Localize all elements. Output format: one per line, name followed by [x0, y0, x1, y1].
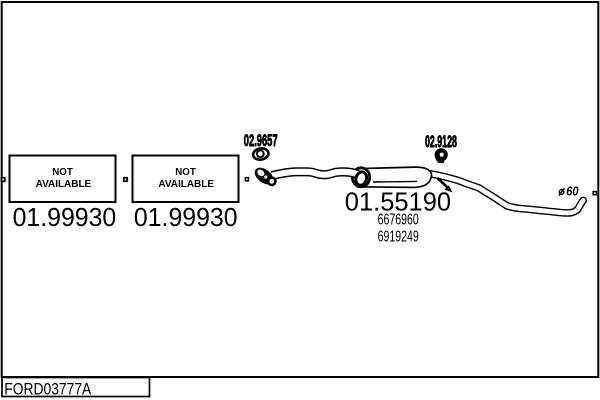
- svg-text:AVAILABLE: AVAILABLE: [158, 179, 214, 190]
- svg-text:AVAILABLE: AVAILABLE: [36, 179, 92, 190]
- svg-text:NOT: NOT: [52, 167, 73, 178]
- svg-text:6919249: 6919249: [378, 227, 419, 245]
- svg-text:FORD03777A: FORD03777A: [4, 381, 92, 399]
- svg-text:6676960: 6676960: [378, 210, 419, 228]
- svg-text:01.99930: 01.99930: [134, 204, 238, 232]
- svg-text:60: 60: [566, 184, 579, 199]
- svg-text:NOT: NOT: [175, 167, 196, 178]
- svg-text:02.9128: 02.9128: [425, 132, 457, 151]
- svg-text:01.99930: 01.99930: [13, 204, 117, 232]
